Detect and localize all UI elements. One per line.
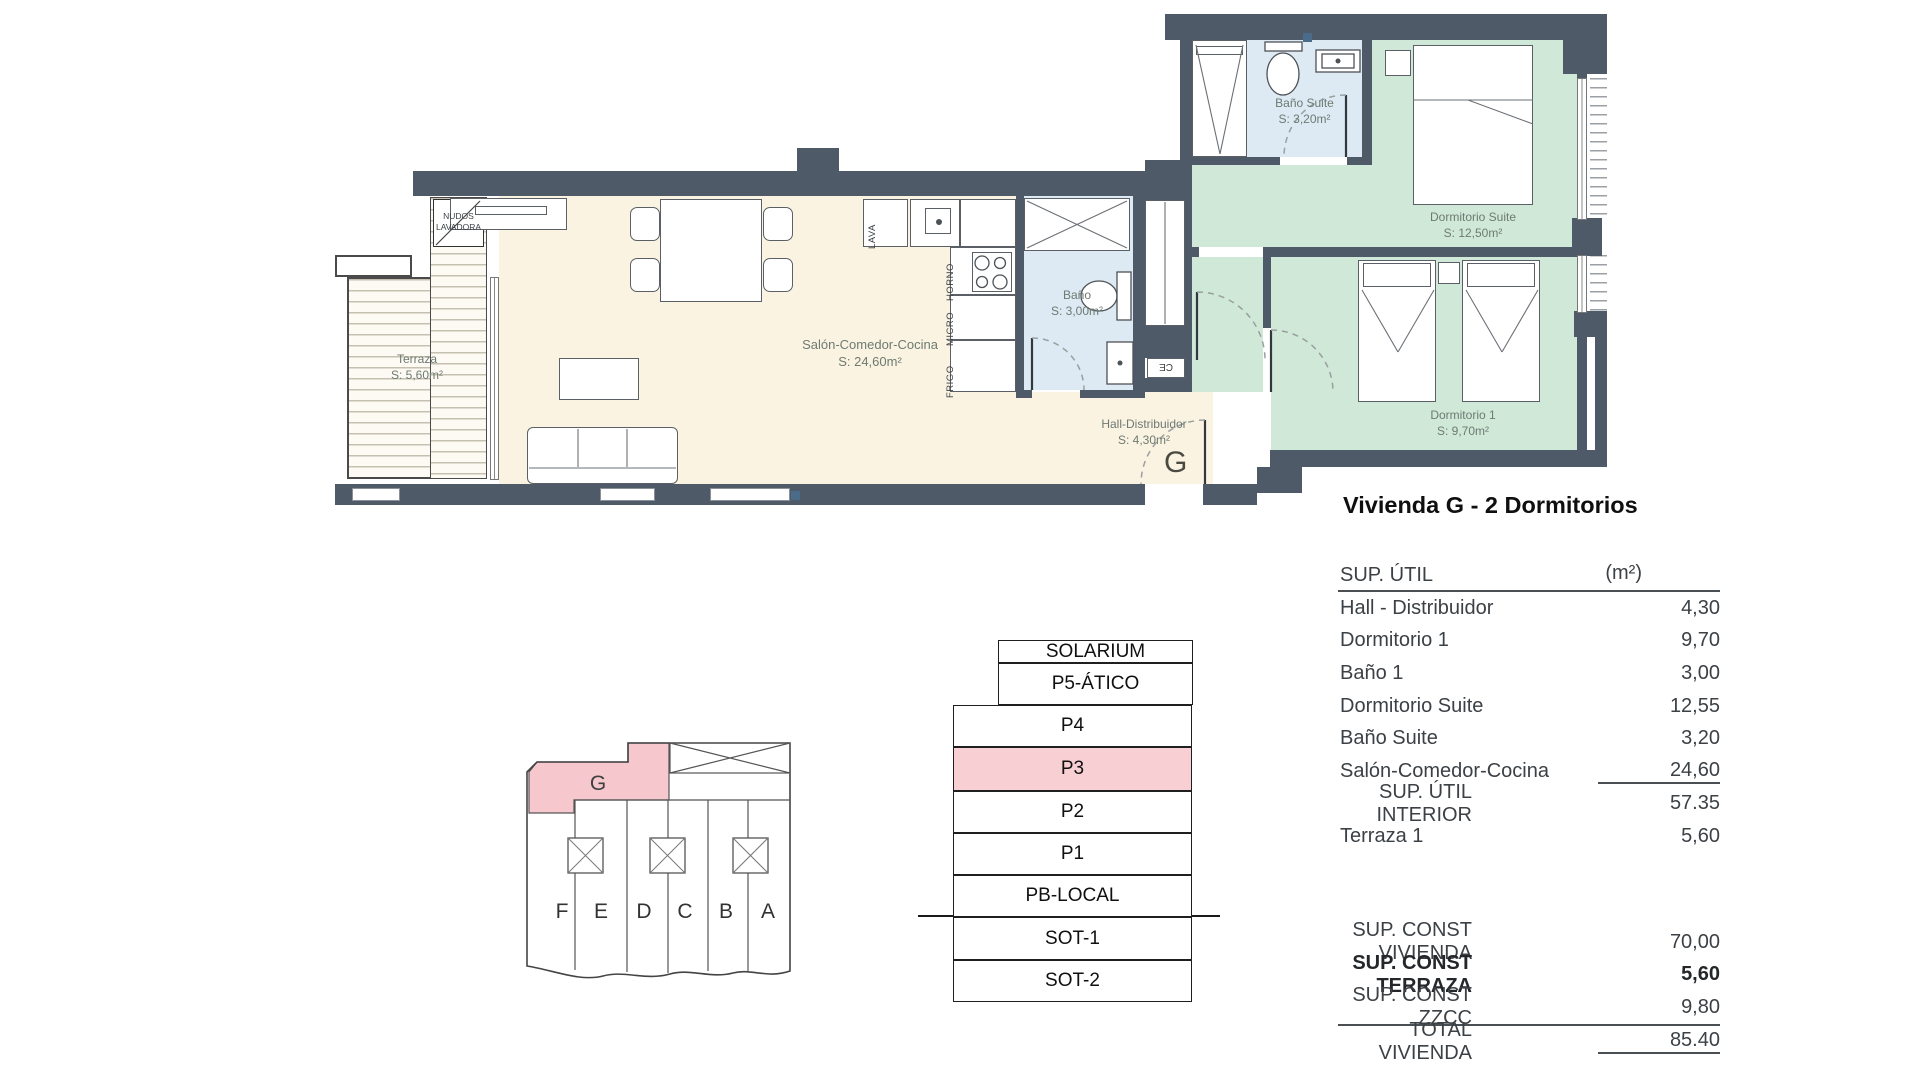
row-value: 85.40 <box>1598 1029 1720 1054</box>
label-dorm-suite: Dormitorio SuiteS: 12,50m² <box>1398 210 1548 241</box>
label-frigo: FRIGO <box>945 365 956 398</box>
row-value: 3,00 <box>1598 662 1720 685</box>
hob-burner <box>993 275 1007 289</box>
wall-marker <box>791 491 800 500</box>
sink-tap <box>1118 361 1123 366</box>
label-micro: MICRO <box>945 312 956 346</box>
sink-tap <box>1336 59 1341 64</box>
row-label: Terraza 1 <box>1338 825 1598 848</box>
label-salon: Salón-Comedor-CocinaS: 24,60m² <box>770 337 970 371</box>
row-value: 3,20 <box>1598 727 1720 750</box>
area-table: SUP. ÚTIL (m²) Hall - Distribuidor4,30 D… <box>1338 558 1720 1058</box>
hob-burner <box>977 277 988 288</box>
row-label: Baño Suite <box>1338 727 1598 750</box>
row-label: Dormitorio 1 <box>1338 629 1598 652</box>
table-header-label: SUP. ÚTIL <box>1340 564 1433 587</box>
table-header-unit: (m²) <box>1605 562 1642 585</box>
table-grand-total-row: TOTAL VIVIENDA85.40 <box>1338 1024 1720 1059</box>
row-value: 24,60 <box>1598 759 1720 784</box>
bed-duvet <box>1362 290 1398 352</box>
row-value: 70,00 <box>1598 931 1720 954</box>
table-row-subtotal: SUP. ÚTIL INTERIOR57.35 <box>1338 788 1720 821</box>
label-horno: HORNO <box>945 263 956 301</box>
door-arc <box>1271 330 1333 392</box>
label-bano: BañoS: 3,00m² <box>1024 288 1130 319</box>
shower-v <box>1220 45 1243 154</box>
row-label: Baño 1 <box>1338 662 1598 685</box>
label-lavadora: NUDOSLAVADORA <box>433 211 484 232</box>
toilet-tank <box>1265 42 1302 51</box>
sink-tap <box>936 219 942 225</box>
table-row: Baño Suite3,20 <box>1338 722 1720 755</box>
row-label: Dormitorio Suite <box>1338 695 1598 718</box>
row-value: 5,60 <box>1598 825 1720 848</box>
shower-v <box>1196 45 1220 154</box>
table-spacer <box>1338 853 1720 926</box>
row-value: 9,70 <box>1598 629 1720 652</box>
label-unit-letter: G <box>1164 446 1187 480</box>
row-value: 4,30 <box>1598 597 1720 620</box>
table-row: Terraza 15,60 <box>1338 820 1720 853</box>
label-dorm1: Dormitorio 1S: 9,70m² <box>1388 408 1538 439</box>
label-lava: LAVA <box>867 224 878 249</box>
row-value: 5,60 <box>1598 963 1720 986</box>
row-label: TOTAL VIVIENDA <box>1338 1019 1598 1065</box>
label-hall: Hall-DistribuidorS: 4,30m² <box>1064 417 1224 448</box>
label-terraza: TerrazaS: 5,60m² <box>347 352 487 383</box>
row-label: Salón-Comedor-Cocina <box>1338 760 1598 783</box>
door-arc <box>1197 292 1265 360</box>
row-value: 9,80 <box>1598 996 1720 1019</box>
bed-sheet-fold <box>1468 100 1533 124</box>
row-value: 57.35 <box>1598 792 1720 815</box>
row-value: 12,55 <box>1598 695 1720 718</box>
table-row: Dormitorio 19,70 <box>1338 625 1720 658</box>
table-row: Dormitorio Suite12,55 <box>1338 690 1720 723</box>
hob-burner <box>995 258 1006 269</box>
hob-burner <box>975 256 989 270</box>
row-label: Hall - Distribuidor <box>1338 597 1598 620</box>
page-title: Vivienda G - 2 Dormitorios <box>1343 492 1638 519</box>
row-label: SUP. ÚTIL INTERIOR <box>1338 781 1598 827</box>
table-row: Baño 13,00 <box>1338 657 1720 690</box>
toilet-icon <box>1267 53 1299 95</box>
wall-marker <box>1303 33 1312 42</box>
bed-duvet <box>1502 290 1538 352</box>
floorplan-sheet: TerrazaS: 5,60m² NUDOSLAVADORA Salón-Com… <box>0 0 1918 1080</box>
table-header: SUP. ÚTIL (m²) <box>1338 558 1720 592</box>
label-bano-suite: Baño SuiteS: 3,20m² <box>1247 96 1362 127</box>
door-arc <box>1032 338 1084 390</box>
label-ce-shaft: CE <box>1147 361 1185 372</box>
bed-duvet <box>1466 290 1502 352</box>
bed-duvet <box>1398 290 1434 352</box>
table-row: Hall - Distribuidor4,30 <box>1338 592 1720 625</box>
